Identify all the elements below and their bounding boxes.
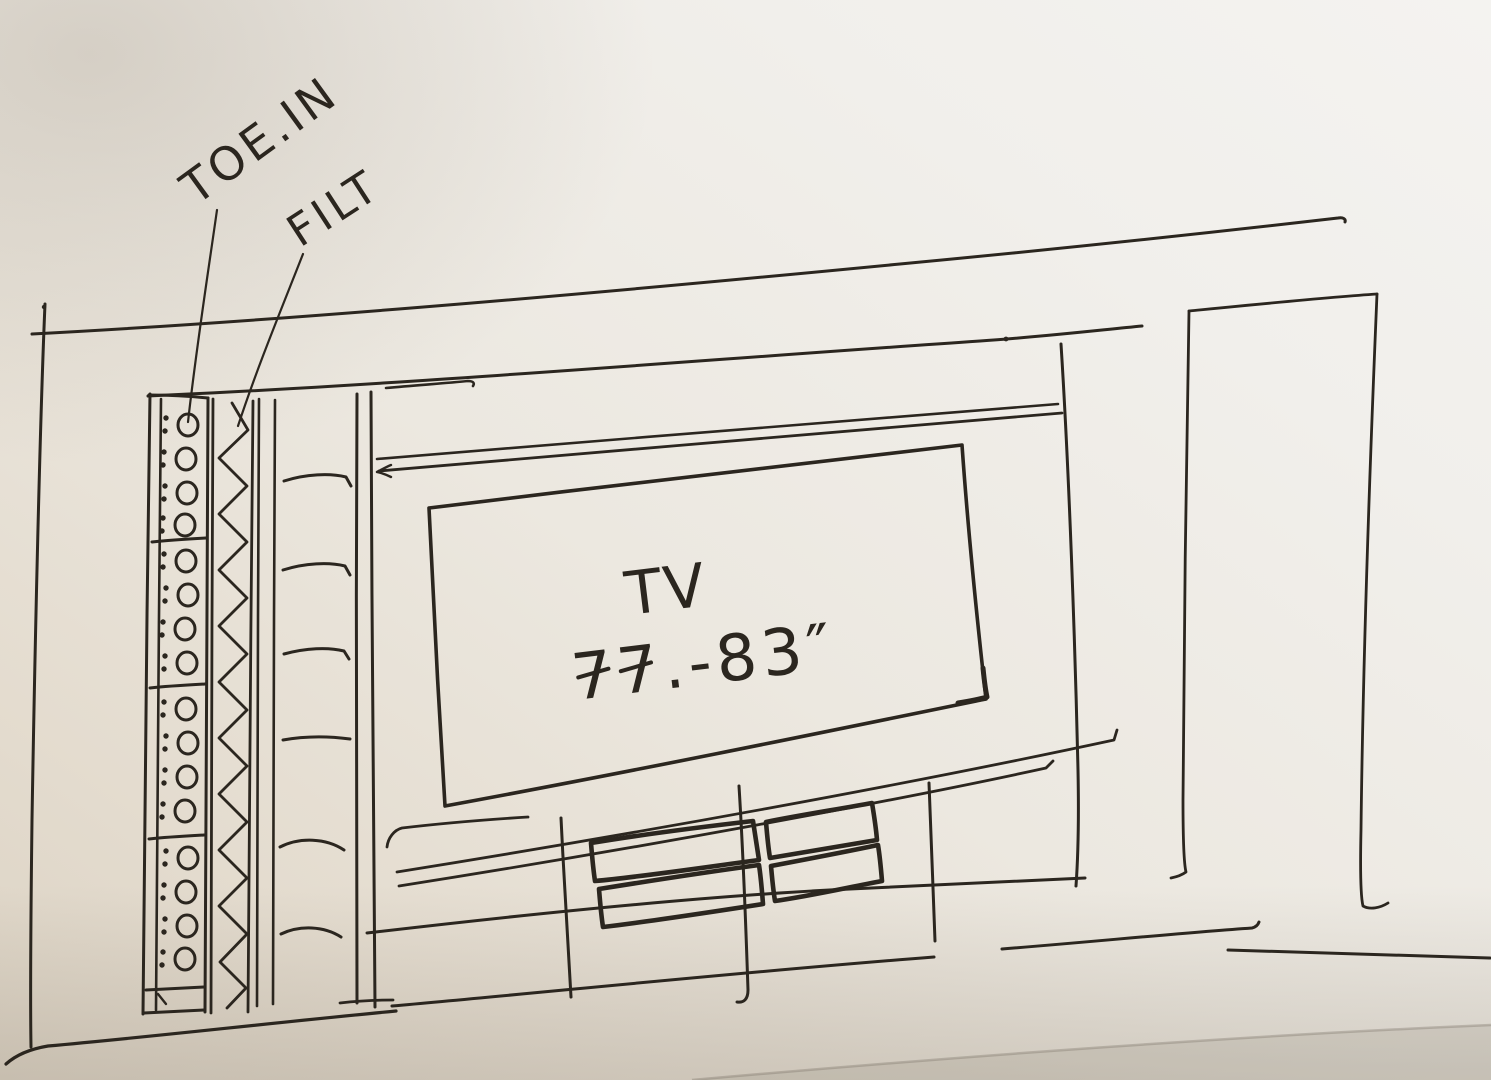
bay-right-edge [356,394,357,1003]
media-wall-sketch: TV 77.-83″ TOE.IN FILT [0,0,1491,1080]
sketch-photo: TV 77.-83″ TOE.IN FILT [0,0,1491,1080]
wall-junction-dot [42,305,46,309]
tv-label: TV [620,550,711,630]
ink-dot [1004,337,1009,342]
